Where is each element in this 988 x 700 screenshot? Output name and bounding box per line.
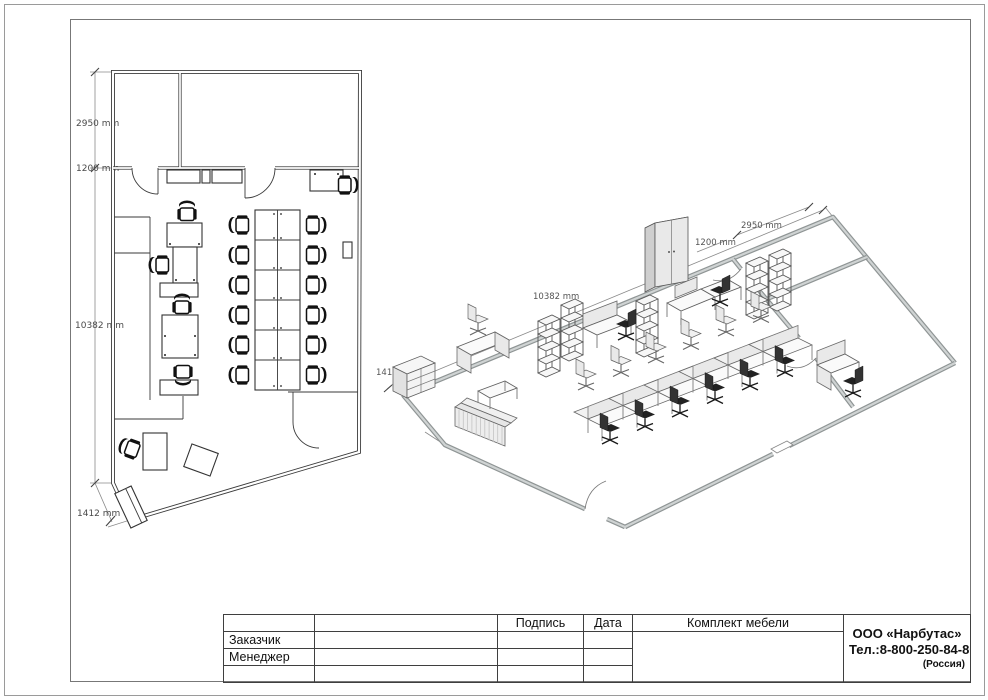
signature-header: Подпись: [498, 615, 584, 632]
drawing-sheet: 2950 mm 1200 mm 10382 mm 1412 mm: [0, 0, 988, 700]
company-info: ООО «Нарбутас» Тел.:8-800-250-84-80 (Рос…: [844, 615, 971, 683]
title-block-empty-cell: [224, 666, 315, 683]
plan-visitor-desk: [143, 433, 167, 470]
title-block: Подпись Дата Комплект мебели ООО «Нарбут…: [223, 614, 971, 683]
isometric-view: 10382 mm 2950 mm 1200 mm 1412 mm: [375, 195, 970, 535]
plan-chair: [229, 275, 249, 294]
floor-plan-2d: 2950 mm 1200 mm 10382 mm 1412 mm: [75, 60, 375, 535]
title-block-empty-cell: [315, 666, 498, 683]
furniture-set-header: Комплект мебели: [633, 615, 844, 632]
plan-chair: [307, 275, 327, 294]
title-block-empty-cell: [498, 666, 584, 683]
plan-chair: [177, 201, 196, 221]
plan-chair: [149, 255, 169, 274]
company-country: (Россия): [849, 659, 965, 672]
customer-date-cell: [584, 632, 633, 649]
plan-chair: [307, 365, 327, 384]
company-name: ООО «Нарбутас»: [849, 626, 965, 642]
customer-signature-cell: [498, 632, 584, 649]
company-phone: Тел.:8-800-250-84-80: [849, 642, 965, 658]
plan-chair: [307, 245, 327, 264]
customer-label: Заказчик: [224, 632, 315, 649]
iso-wardrobe: [645, 217, 688, 292]
iso-dim-label: 2950 mm: [741, 221, 782, 231]
customer-value-cell: [315, 632, 498, 649]
manager-label: Менеджер: [224, 649, 315, 666]
plan-side-table: [184, 444, 219, 476]
manager-signature-cell: [498, 649, 584, 666]
plan-dimensions: 2950 mm 1200 mm 10382 mm 1412 mm: [75, 68, 130, 527]
plan-chair: [229, 305, 249, 324]
plan-radiator: [343, 242, 352, 258]
furniture-set-value-cell: [633, 632, 844, 683]
iso-dim-label: 1200 mm: [695, 238, 736, 248]
plan-chair: [116, 435, 141, 460]
plan-chair: [229, 215, 249, 234]
plan-chair: [229, 335, 249, 354]
plan-chair: [307, 335, 327, 354]
date-header: Дата: [584, 615, 633, 632]
plan-chair: [229, 365, 249, 384]
manager-date-cell: [584, 649, 633, 666]
plan-sofa: [115, 486, 147, 528]
plan-chair: [339, 175, 359, 194]
iso-office-chair: [468, 304, 488, 335]
title-block-empty-cell: [584, 666, 633, 683]
plan-bench-desks: [255, 210, 300, 390]
plan-wall-cabinets: [167, 170, 242, 183]
plan-dim-label: 1412 mm: [77, 509, 120, 519]
plan-chair: [229, 245, 249, 264]
title-block-empty-cell: [315, 615, 498, 632]
title-block-empty-cell: [224, 615, 315, 632]
plan-chair: [307, 305, 327, 324]
manager-value-cell: [315, 649, 498, 666]
plan-dim-label: 10382 mm: [75, 321, 124, 331]
plan-chair: [307, 215, 327, 234]
